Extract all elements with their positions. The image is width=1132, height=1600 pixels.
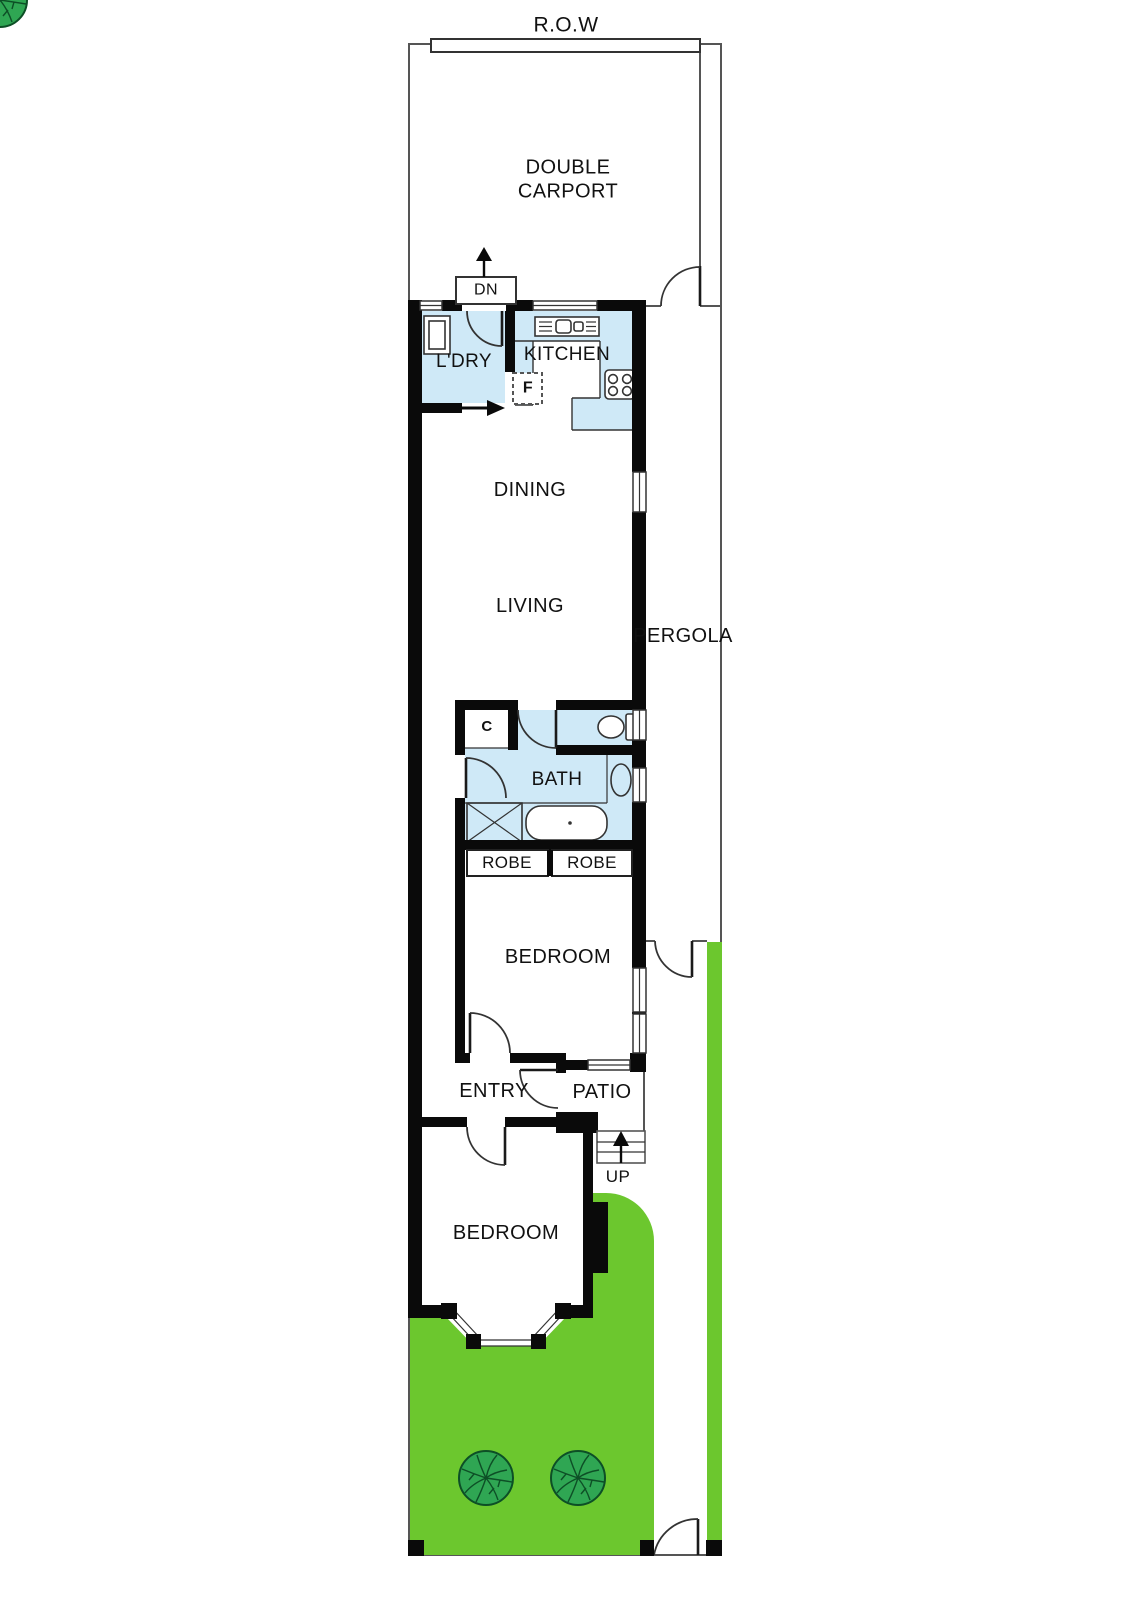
tree-icon — [551, 1451, 605, 1505]
label-carport-line2: CARPORT — [518, 180, 618, 204]
label-bedroom-front: BEDROOM — [453, 1222, 559, 1246]
row-gate-bar — [431, 39, 700, 52]
label-dn: DN — [474, 282, 498, 301]
laundry-trough-icon — [424, 316, 450, 354]
tree-icon — [459, 1451, 513, 1505]
label-bath: BATH — [532, 769, 583, 791]
label-carport-line1: DOUBLE — [518, 156, 618, 180]
label-up: UP — [606, 1167, 630, 1187]
label-closet: C — [481, 718, 492, 736]
kitchen-sink-icon — [535, 317, 599, 336]
label-entry: ENTRY — [459, 1080, 528, 1104]
label-fridge: F — [523, 380, 533, 399]
patio-steps — [597, 1131, 645, 1163]
label-carport: DOUBLE CARPORT — [518, 156, 618, 203]
label-robe-left: ROBE — [482, 853, 532, 873]
floorplan-drawing — [0, 0, 1132, 1600]
label-bedroom-rear: BEDROOM — [505, 946, 611, 970]
label-row: R.O.W — [534, 14, 599, 39]
label-living: LIVING — [496, 595, 564, 619]
bathtub-icon — [526, 806, 607, 840]
label-pergola: PERGOLA — [633, 625, 733, 649]
label-patio: PATIO — [572, 1081, 631, 1105]
floorplan-page: R.O.W DOUBLE CARPORT DN L'DRY KITCHEN F … — [0, 0, 1132, 1600]
label-robe-right: ROBE — [567, 853, 617, 873]
tree-icon — [0, 0, 27, 27]
stove-icon — [605, 370, 635, 399]
label-dining: DINING — [494, 479, 566, 503]
label-laundry: L'DRY — [436, 351, 492, 373]
label-kitchen: KITCHEN — [524, 344, 610, 366]
